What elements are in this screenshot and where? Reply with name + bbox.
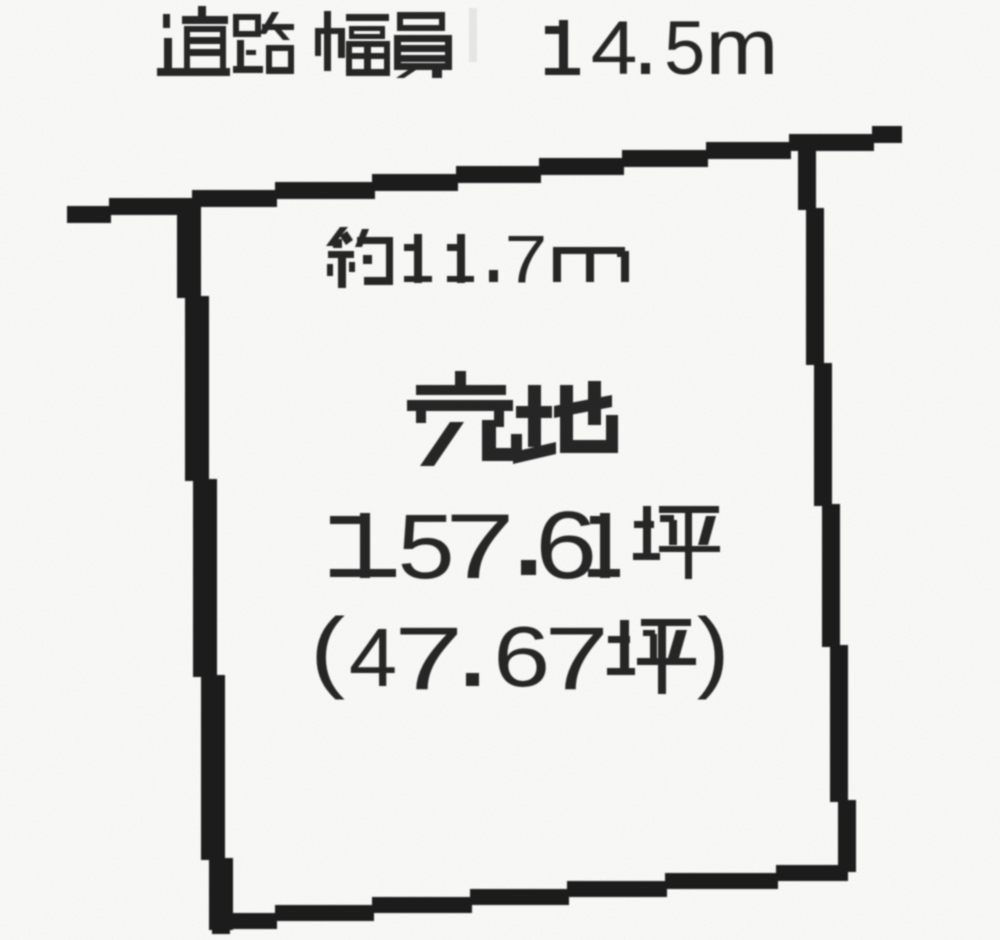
svg-text:4: 4 xyxy=(591,6,638,90)
svg-text:(: ( xyxy=(310,599,346,700)
svg-text:): ) xyxy=(697,600,730,701)
svg-text:6: 6 xyxy=(493,609,550,704)
svg-text:6: 6 xyxy=(535,492,597,599)
svg-text:7: 7 xyxy=(545,609,609,708)
svg-text:4: 4 xyxy=(349,612,397,705)
svg-text:7: 7 xyxy=(445,496,514,598)
svg-text:7: 7 xyxy=(394,608,463,707)
svg-text:5: 5 xyxy=(664,5,705,90)
svg-text:7: 7 xyxy=(505,222,548,298)
svg-text:m: m xyxy=(706,3,779,91)
